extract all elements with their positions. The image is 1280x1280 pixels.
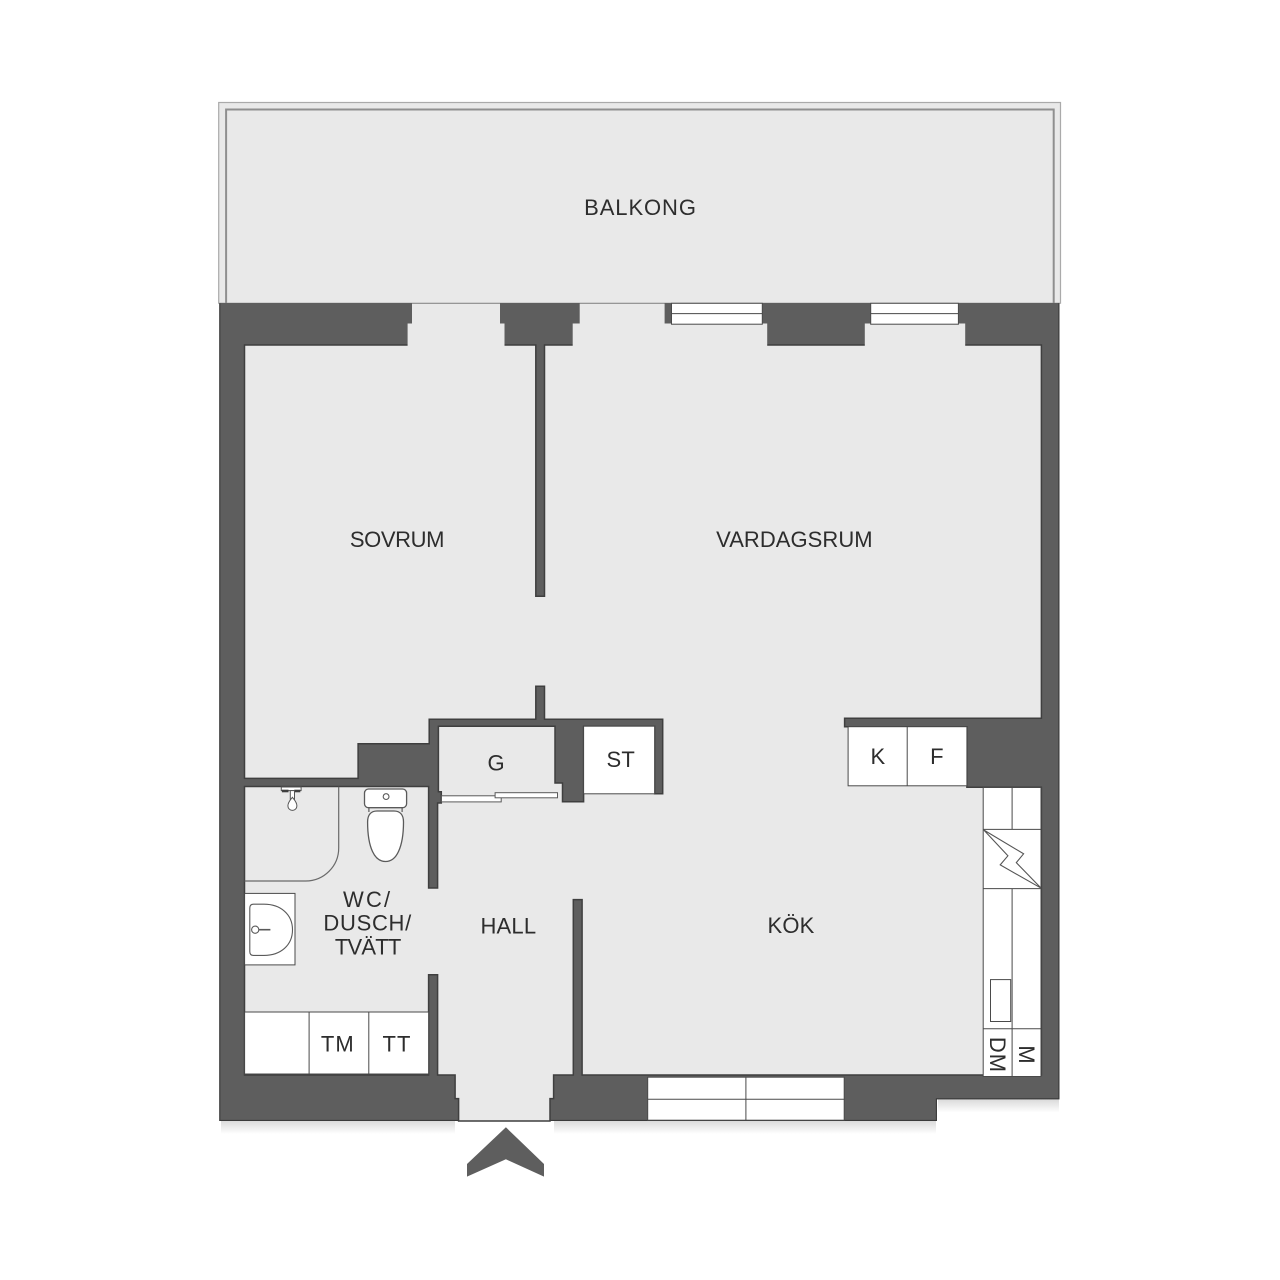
svg-text:WC/: WC/ (343, 887, 392, 912)
svg-text:DUSCH/: DUSCH/ (323, 911, 412, 936)
svg-text:DM: DM (985, 1037, 1010, 1073)
svg-text:TM: TM (321, 1031, 355, 1056)
svg-text:KÖK: KÖK (768, 913, 815, 938)
svg-text:TT: TT (383, 1031, 412, 1056)
svg-text:TVÄTT: TVÄTT (335, 934, 401, 959)
svg-text:F: F (930, 744, 944, 769)
svg-text:BALKONG: BALKONG (584, 195, 697, 220)
svg-text:HALL: HALL (480, 913, 536, 938)
svg-text:G: G (488, 751, 506, 776)
svg-text:VARDAGSRUM: VARDAGSRUM (716, 527, 873, 552)
svg-text:K: K (870, 744, 886, 769)
svg-text:ST: ST (607, 747, 636, 772)
svg-text:SOVRUM: SOVRUM (350, 527, 444, 552)
svg-text:M: M (1014, 1045, 1039, 1064)
